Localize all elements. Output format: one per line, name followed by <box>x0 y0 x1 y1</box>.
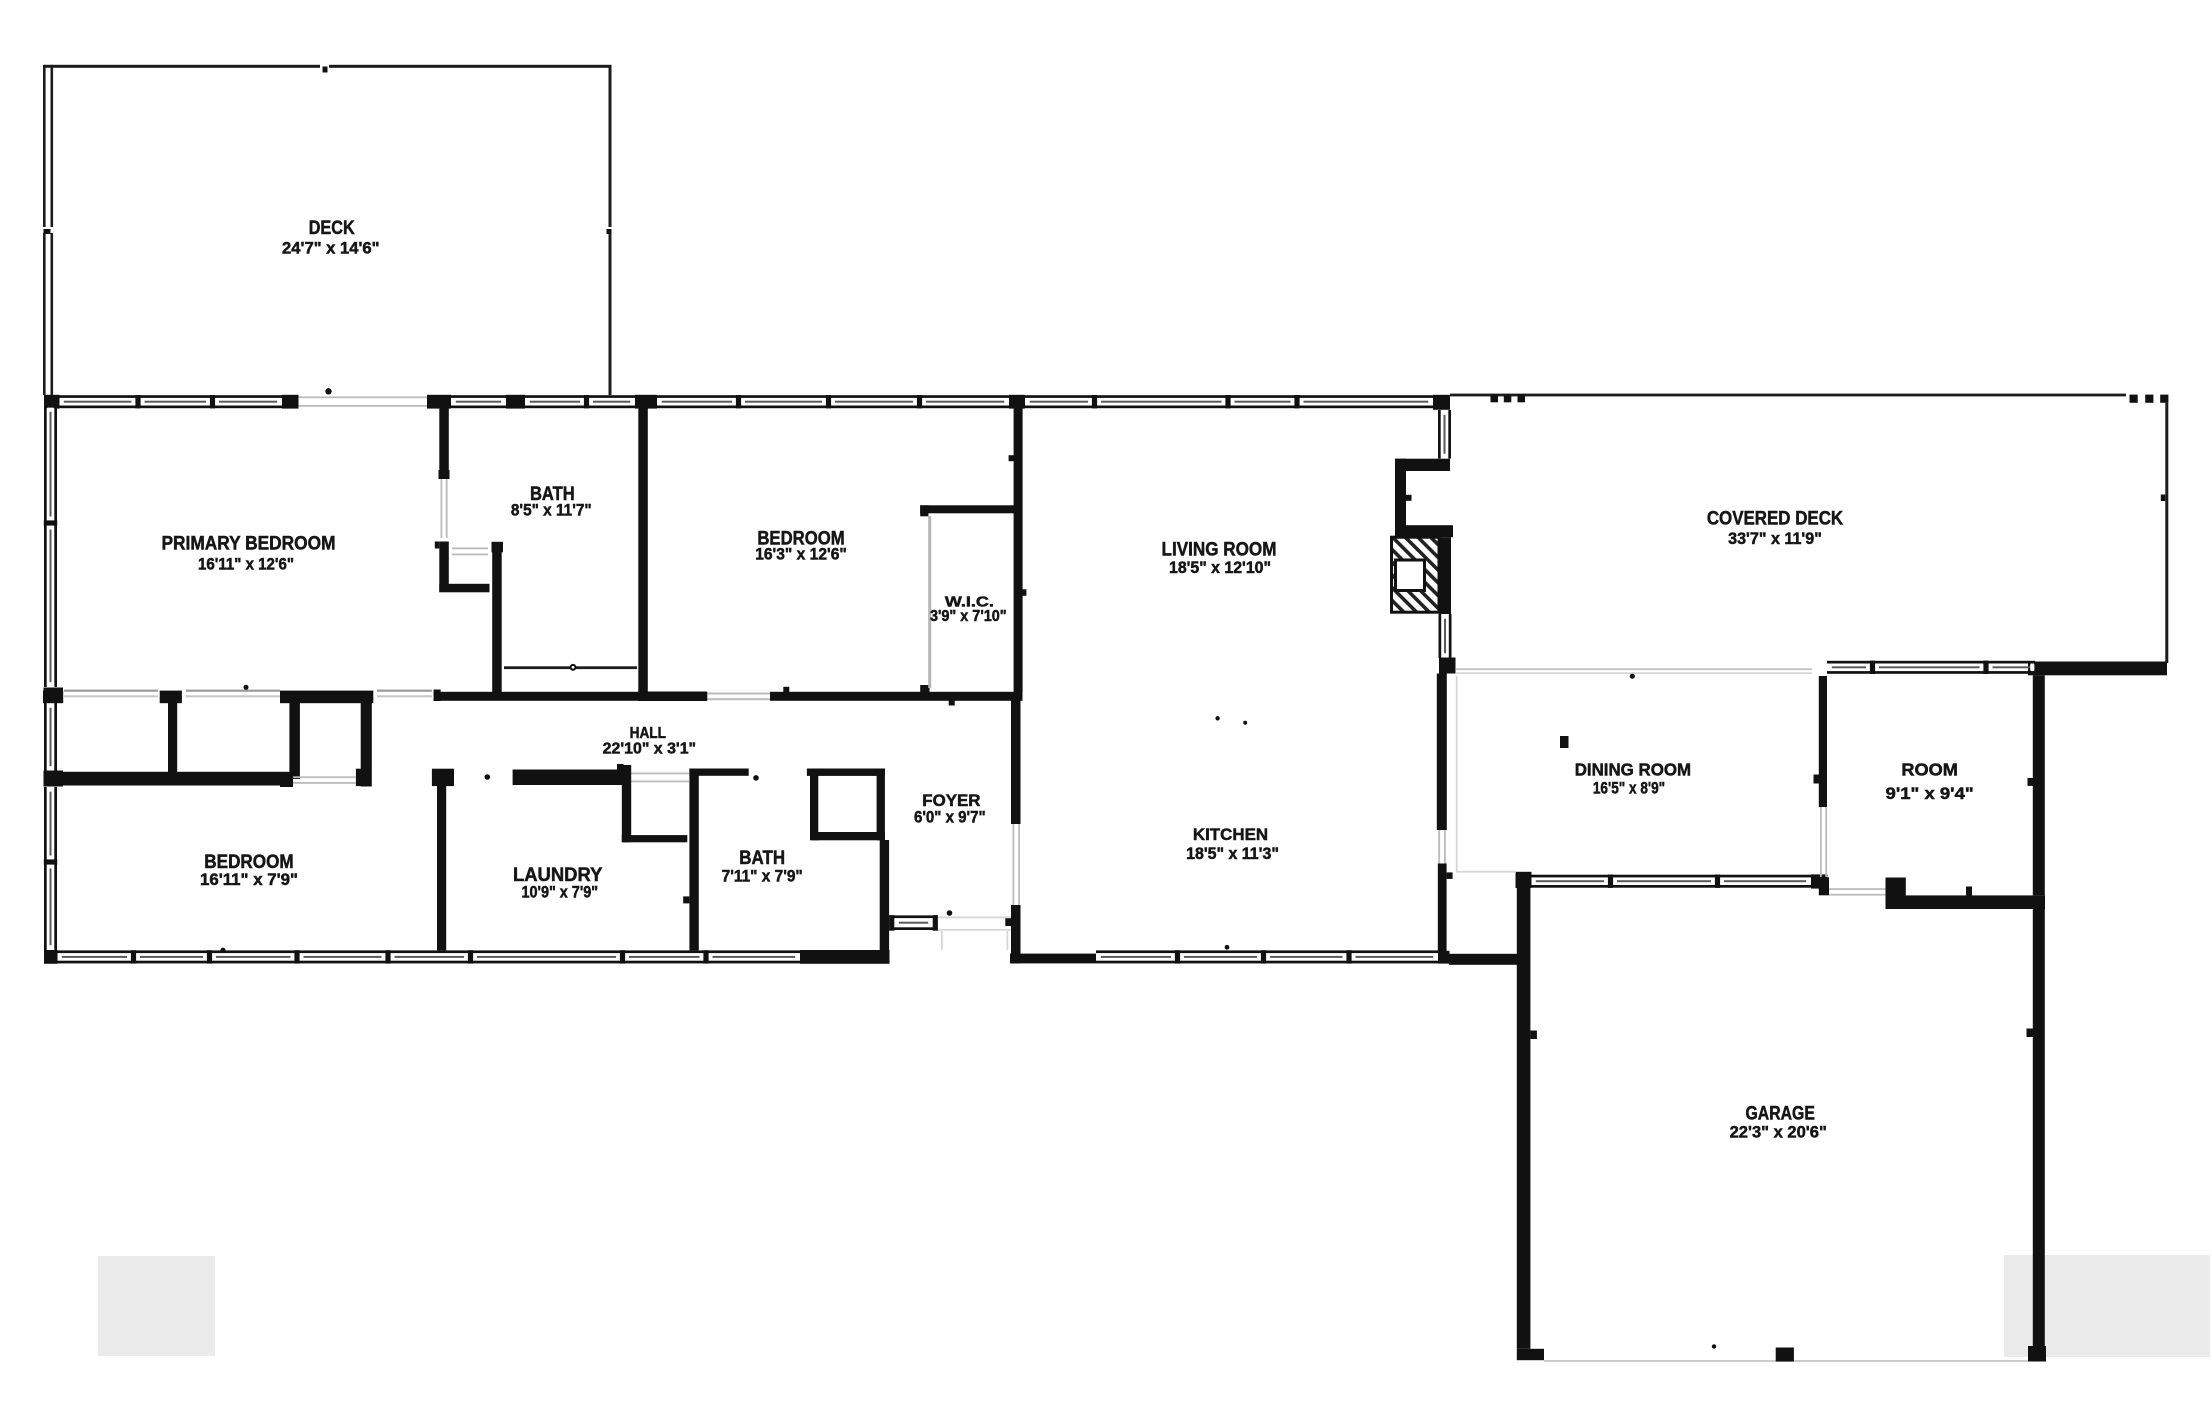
svg-text:BEDROOM: BEDROOM <box>204 852 293 873</box>
svg-text:16'5" x 8'9": 16'5" x 8'9" <box>1593 780 1665 798</box>
svg-text:8'5" x 11'7": 8'5" x 11'7" <box>511 502 592 520</box>
svg-text:LIVING ROOM: LIVING ROOM <box>1162 540 1277 561</box>
svg-text:DINING ROOM: DINING ROOM <box>1575 760 1691 780</box>
svg-text:HALL: HALL <box>630 725 666 742</box>
svg-text:18'5" x 12'10": 18'5" x 12'10" <box>1169 559 1271 577</box>
svg-text:7'11" x 7'9": 7'11" x 7'9" <box>722 868 803 886</box>
svg-text:KITCHEN: KITCHEN <box>1193 825 1268 844</box>
svg-text:GARAGE: GARAGE <box>1746 1104 1815 1125</box>
svg-text:FOYER: FOYER <box>922 792 980 810</box>
svg-text:16'11" x 7'9": 16'11" x 7'9" <box>200 871 298 889</box>
svg-text:16'3" x 12'6": 16'3" x 12'6" <box>755 546 847 564</box>
svg-text:ROOM: ROOM <box>1901 760 1958 780</box>
svg-text:DECK: DECK <box>309 218 355 239</box>
svg-text:3'9" x 7'10": 3'9" x 7'10" <box>930 608 1007 625</box>
svg-text:22'3" x 20'6": 22'3" x 20'6" <box>1730 1124 1827 1142</box>
svg-text:6'0" x 9'7": 6'0" x 9'7" <box>914 809 986 827</box>
svg-text:22'10" x 3'1": 22'10" x 3'1" <box>603 741 696 758</box>
svg-text:18'5" x 11'3": 18'5" x 11'3" <box>1186 845 1279 863</box>
svg-text:33'7" x 11'9": 33'7" x 11'9" <box>1728 530 1822 548</box>
svg-text:24'7" x 14'6": 24'7" x 14'6" <box>282 240 380 258</box>
svg-text:PRIMARY BEDROOM: PRIMARY BEDROOM <box>162 534 336 555</box>
svg-text:10'9" x 7'9": 10'9" x 7'9" <box>522 884 599 902</box>
svg-text:BATH: BATH <box>739 848 785 869</box>
svg-text:COVERED DECK: COVERED DECK <box>1707 509 1844 530</box>
svg-text:9'1" x 9'4": 9'1" x 9'4" <box>1886 785 1974 803</box>
svg-text:16'11" x 12'6": 16'11" x 12'6" <box>198 556 294 574</box>
